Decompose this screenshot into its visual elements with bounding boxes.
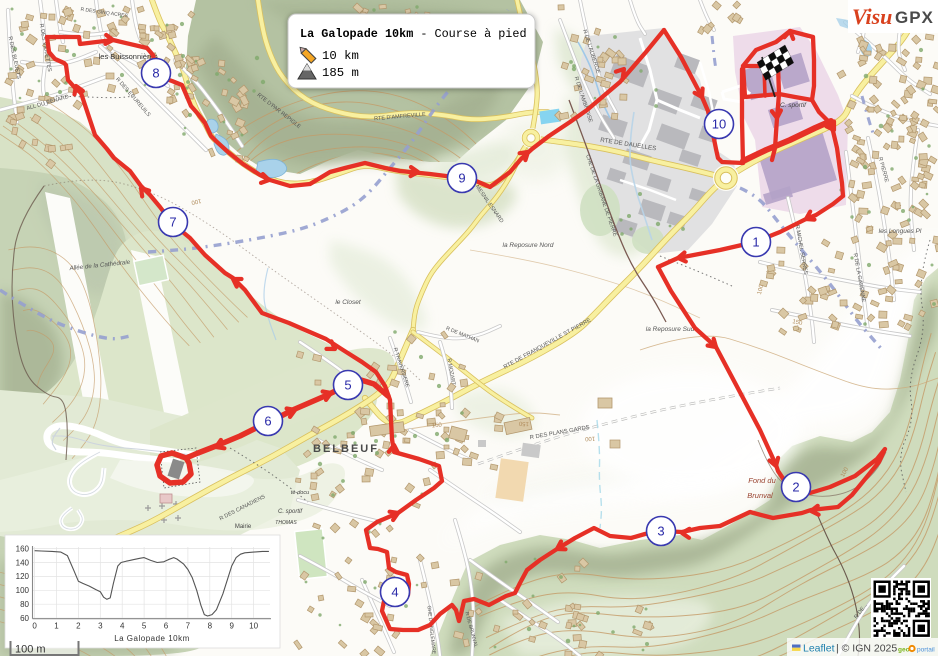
svg-text:Brunval: Brunval (747, 491, 773, 500)
svg-text:te-docu: te-docu (291, 490, 309, 496)
svg-text:185 m: 185 m (322, 66, 359, 80)
svg-text:3: 3 (98, 622, 103, 631)
svg-text:THOMAS: THOMAS (275, 520, 297, 526)
svg-text:3: 3 (657, 524, 664, 539)
svg-text:Leaflet: Leaflet (803, 643, 835, 655)
svg-text:150: 150 (432, 422, 443, 429)
svg-text:C. sportif: C. sportif (278, 509, 303, 515)
svg-text:la Reposure Sud: la Reposure Sud (646, 326, 695, 333)
svg-text:9: 9 (458, 171, 465, 186)
svg-text:BELBEUF: BELBEUF (313, 443, 379, 455)
svg-text:5: 5 (344, 378, 351, 393)
svg-text:160: 160 (16, 544, 30, 553)
svg-text:1: 1 (54, 622, 59, 631)
svg-text:2: 2 (792, 480, 799, 495)
svg-text:9: 9 (229, 622, 234, 631)
svg-text:8: 8 (208, 622, 213, 631)
svg-text:0: 0 (32, 622, 37, 631)
svg-text:4: 4 (391, 585, 398, 600)
svg-text:10: 10 (712, 117, 726, 132)
svg-text:5: 5 (142, 622, 147, 631)
svg-text:C. sportif: C. sportif (780, 102, 807, 109)
svg-text:le Closet: le Closet (335, 299, 361, 306)
svg-text:10: 10 (249, 622, 258, 631)
svg-text:Visu: Visu (852, 4, 892, 29)
svg-text:6: 6 (264, 414, 271, 429)
svg-text:| © IGN 2025: | © IGN 2025 (836, 643, 897, 655)
svg-text:1: 1 (752, 235, 759, 250)
svg-text:8: 8 (152, 66, 159, 81)
svg-text:les Longues Pl: les Longues Pl (879, 228, 922, 235)
svg-text:120: 120 (16, 572, 30, 581)
svg-text:La Galopade 10km: La Galopade 10km (114, 634, 190, 643)
svg-text:7: 7 (169, 215, 176, 230)
svg-text:6: 6 (164, 622, 169, 631)
svg-text:60: 60 (20, 614, 29, 623)
svg-text:140: 140 (16, 558, 30, 567)
svg-text:80: 80 (20, 600, 29, 609)
svg-text:Mairie: Mairie (235, 524, 252, 530)
svg-text:La Galopade 10km - Course à pi: La Galopade 10km - Course à pied (300, 27, 527, 41)
svg-text:2: 2 (76, 622, 81, 631)
svg-text:Fond du: Fond du (748, 476, 776, 485)
svg-text:geo: geo (898, 647, 910, 654)
svg-text:100: 100 (16, 586, 30, 595)
svg-text:150: 150 (518, 420, 529, 427)
svg-text:100: 100 (584, 435, 595, 442)
svg-text:10 km: 10 km (322, 49, 359, 63)
svg-text:la Reposure Nord: la Reposure Nord (503, 242, 554, 249)
svg-text:4: 4 (120, 622, 125, 631)
svg-text:7: 7 (186, 622, 191, 631)
svg-text:GPX: GPX (895, 8, 934, 27)
svg-text:100 m: 100 m (15, 644, 46, 656)
svg-text:portail: portail (917, 647, 935, 654)
